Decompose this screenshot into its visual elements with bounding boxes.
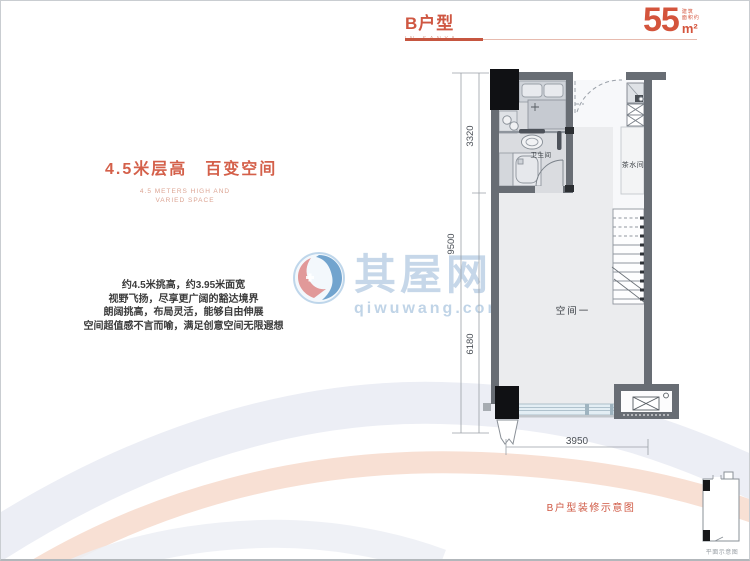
sink-icon	[503, 116, 511, 124]
unit-type-title: B户型	[405, 9, 458, 34]
space-one-label: 空间一	[556, 305, 591, 317]
shaft-top-left	[490, 69, 519, 110]
dim-width-bottom: 3950	[566, 436, 589, 447]
intro-paragraph-line3: 朗阔挑高，布局灵活，能够自由伸展	[51, 306, 316, 320]
ac-platform	[614, 384, 679, 419]
watermark-logo-icon	[292, 251, 346, 305]
column-bottom-left	[495, 386, 519, 419]
dim-height-top: 3320	[465, 125, 476, 146]
intro-paragraph: 约4.5米挑高，约3.95米面宽 视野飞扬，尽享更广阔的豁达境界 朗阔挑高，布局…	[51, 279, 316, 333]
intro-paragraph-line2: 视野飞扬，尽享更广阔的豁达境界	[51, 293, 316, 307]
area-value: 55	[643, 5, 679, 35]
entry-marker-icon	[497, 420, 518, 444]
toilet-icon	[522, 135, 543, 149]
header-underline-strong	[405, 38, 483, 41]
shower-stall-icon	[528, 100, 566, 129]
stairs-icon	[612, 209, 644, 304]
area-unit: m²	[682, 22, 698, 35]
mini-plan-caption: 平面示意图	[693, 547, 750, 556]
sliding-door-icon	[519, 129, 545, 134]
intro-paragraph-line1: 约4.5米挑高，约3.95米面宽	[51, 279, 316, 293]
drain-icon	[664, 393, 669, 398]
intro-subtitle-line1: 4.5 METERS HIGH AND	[105, 187, 265, 196]
mini-plan-icon	[696, 467, 748, 545]
intro-subtitle-line2: VARIED SPACE	[105, 196, 265, 205]
bathroom-label: 卫生间	[531, 150, 552, 159]
dim-height-bottom: 6180	[465, 333, 476, 354]
floor-plan: 卫生间 茶水间 空间一 9500 3320 6180 3950	[441, 53, 741, 463]
area-side: 建筑 面积约 m²	[682, 9, 700, 35]
shower-bench-icon	[522, 84, 542, 97]
intro-title: 4.5米层高 百变空间	[105, 155, 277, 179]
tea-room-label: 茶水间	[622, 160, 645, 169]
dim-height-total: 9500	[446, 233, 457, 254]
area-badge: 55 建筑 面积约 m²	[643, 5, 700, 35]
intro-paragraph-line4: 空间超值感不言而喻，满足创意空间无限遐想	[51, 320, 316, 334]
intro-subtitle: 4.5 METERS HIGH AND VARIED SPACE	[105, 187, 265, 205]
page: B户型 IN SANYA 55 建筑 面积约 m² 4.5米层高 百变空间 4.…	[0, 0, 750, 561]
